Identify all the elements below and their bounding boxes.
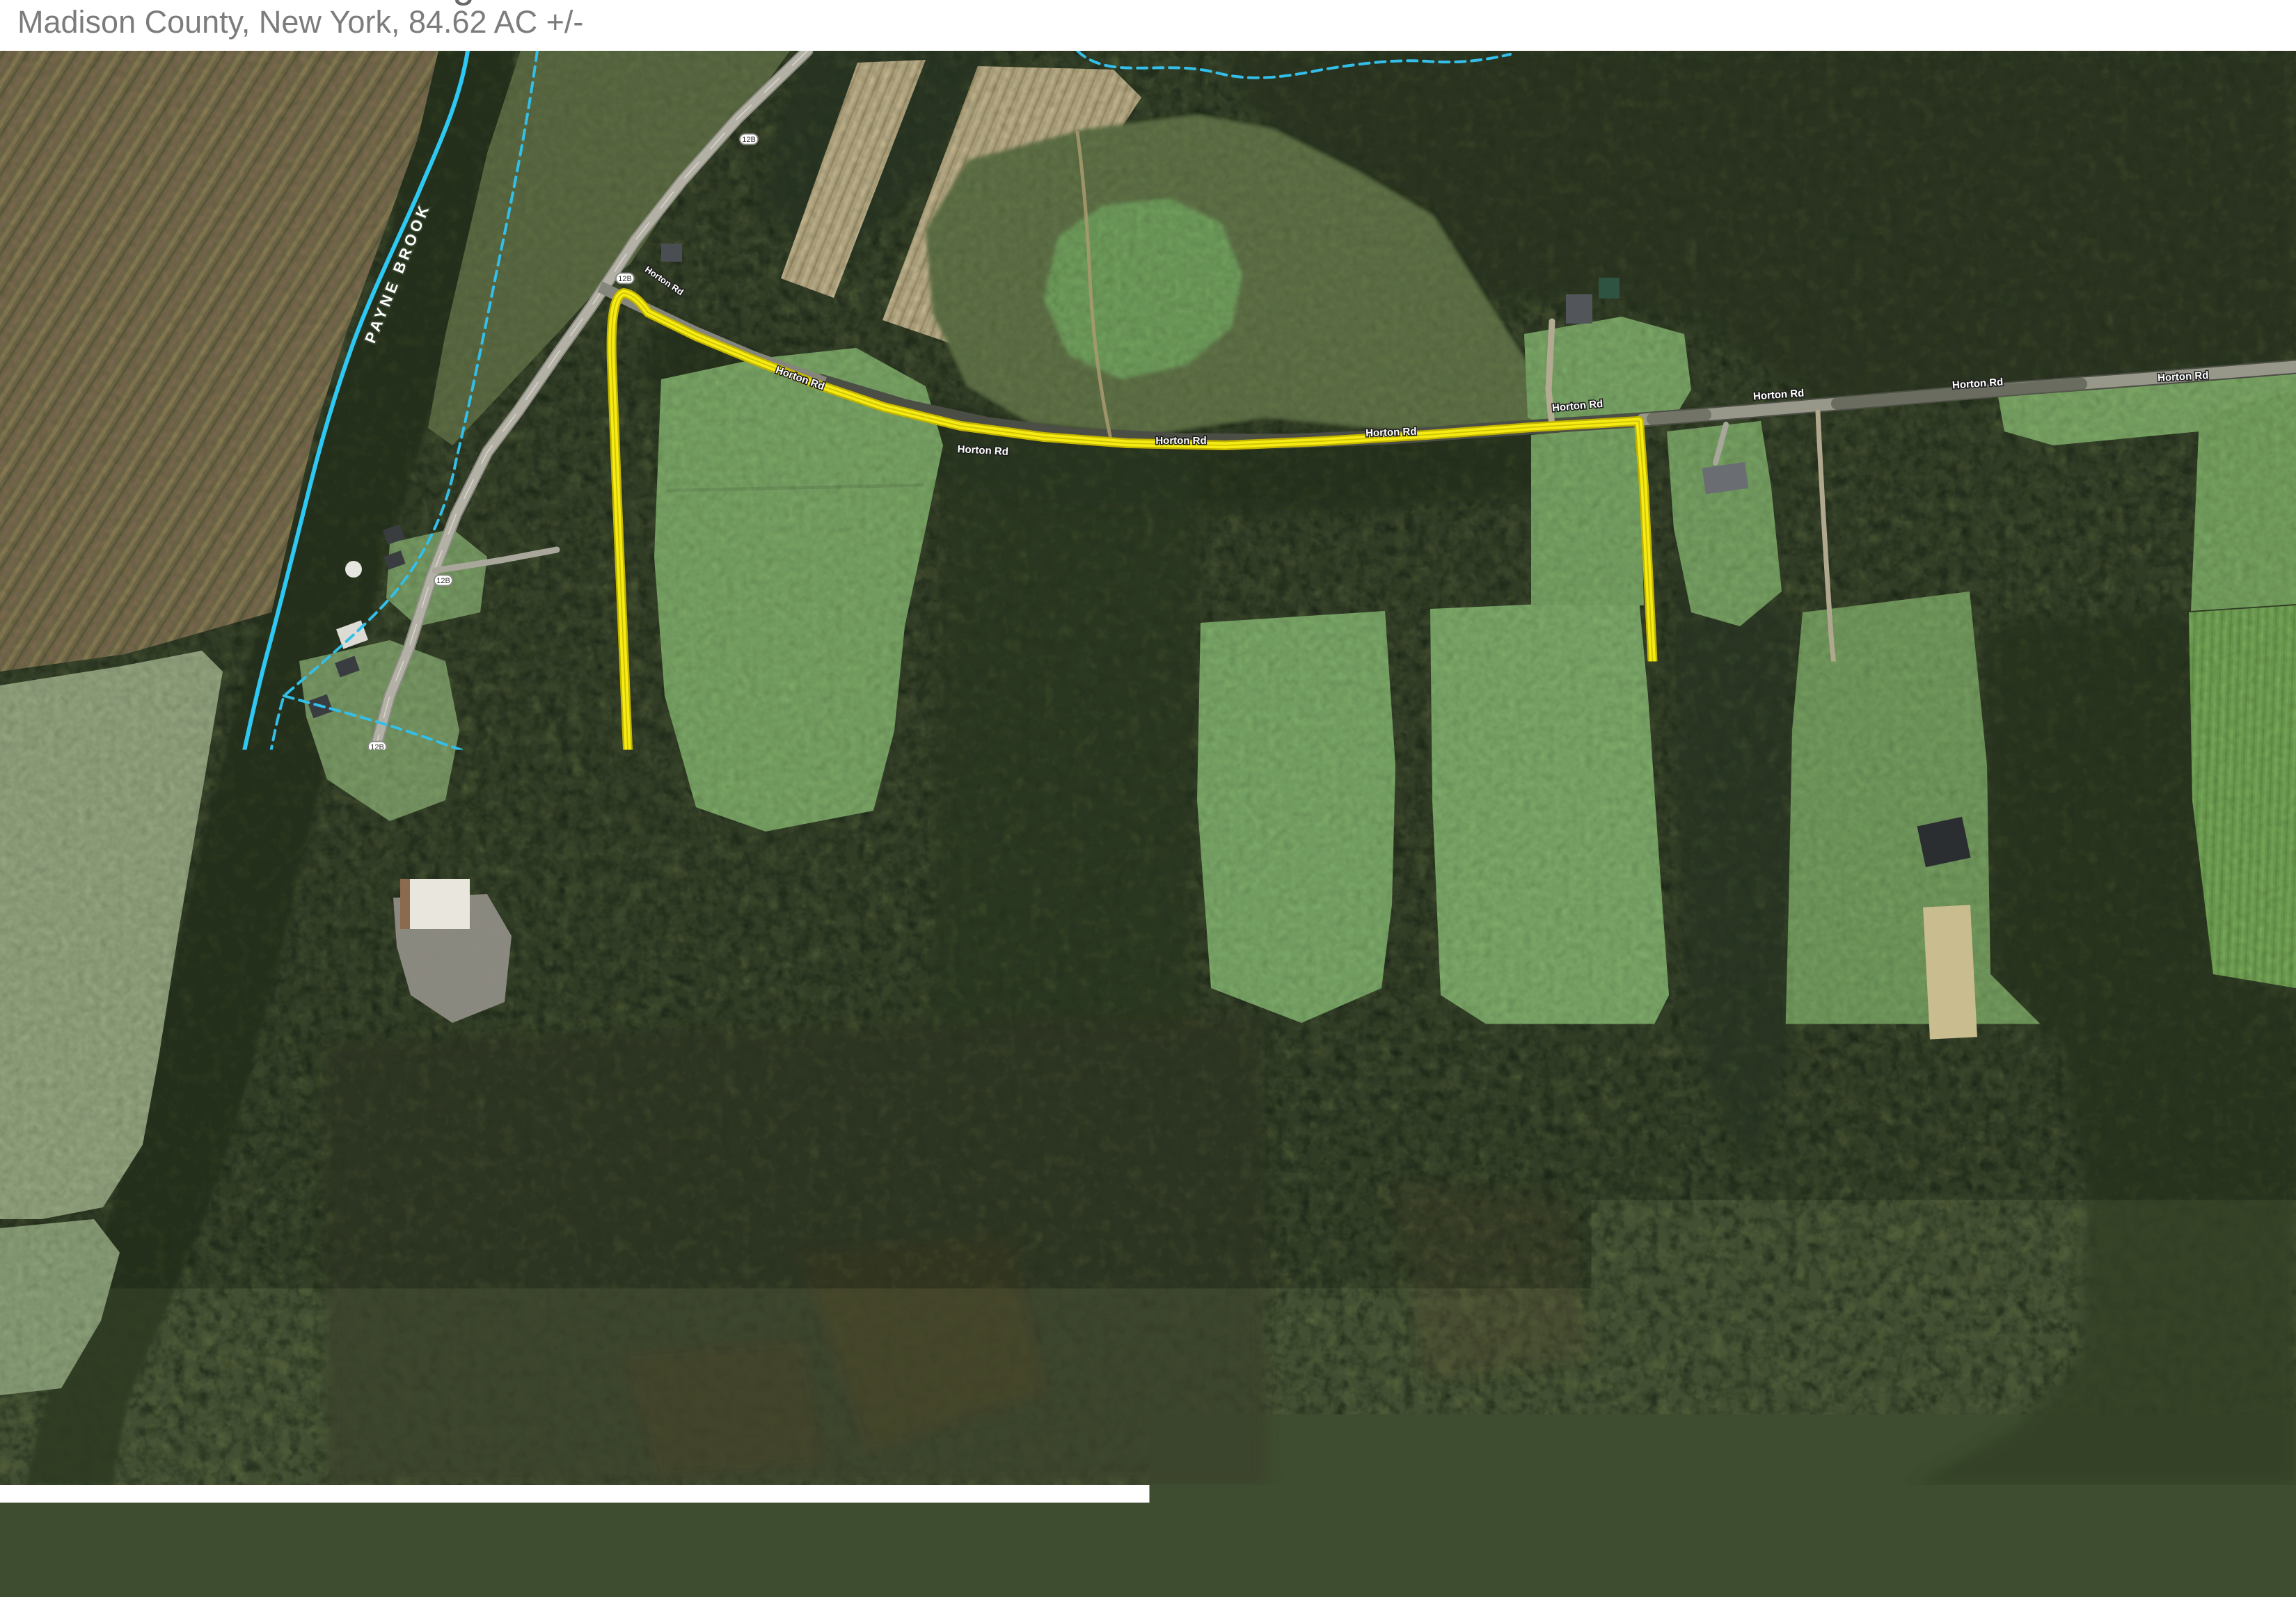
svg-text:77: 77 (168, 1403, 176, 1411)
svg-text:Water Body: Water Body (761, 1526, 850, 1550)
svg-text:500: 500 (1683, 1406, 1734, 1440)
svg-text:Intermittent: Intermittent (308, 1543, 395, 1568)
svg-text:Boundary: Boundary (82, 1527, 154, 1551)
svg-text:77: 77 (11, 1362, 19, 1371)
svg-text:Dedicated Systems Inc: Dedicated Systems Inc (422, 868, 525, 879)
svg-text:Horton Rd: Horton Rd (1365, 426, 1417, 440)
svg-text:River/Creek: River/Creek (535, 1526, 625, 1550)
svg-text:1500: 1500 (2018, 1406, 2087, 1440)
svg-text:Horton Rd: Horton Rd (1155, 435, 1206, 447)
svg-text:1000: 1000 (1846, 1406, 1915, 1440)
svg-text:Stream,: Stream, (308, 1516, 368, 1540)
svg-text:2000ft: 2000ft (2190, 1406, 2274, 1440)
svg-text:0: 0 (1528, 1406, 1545, 1440)
